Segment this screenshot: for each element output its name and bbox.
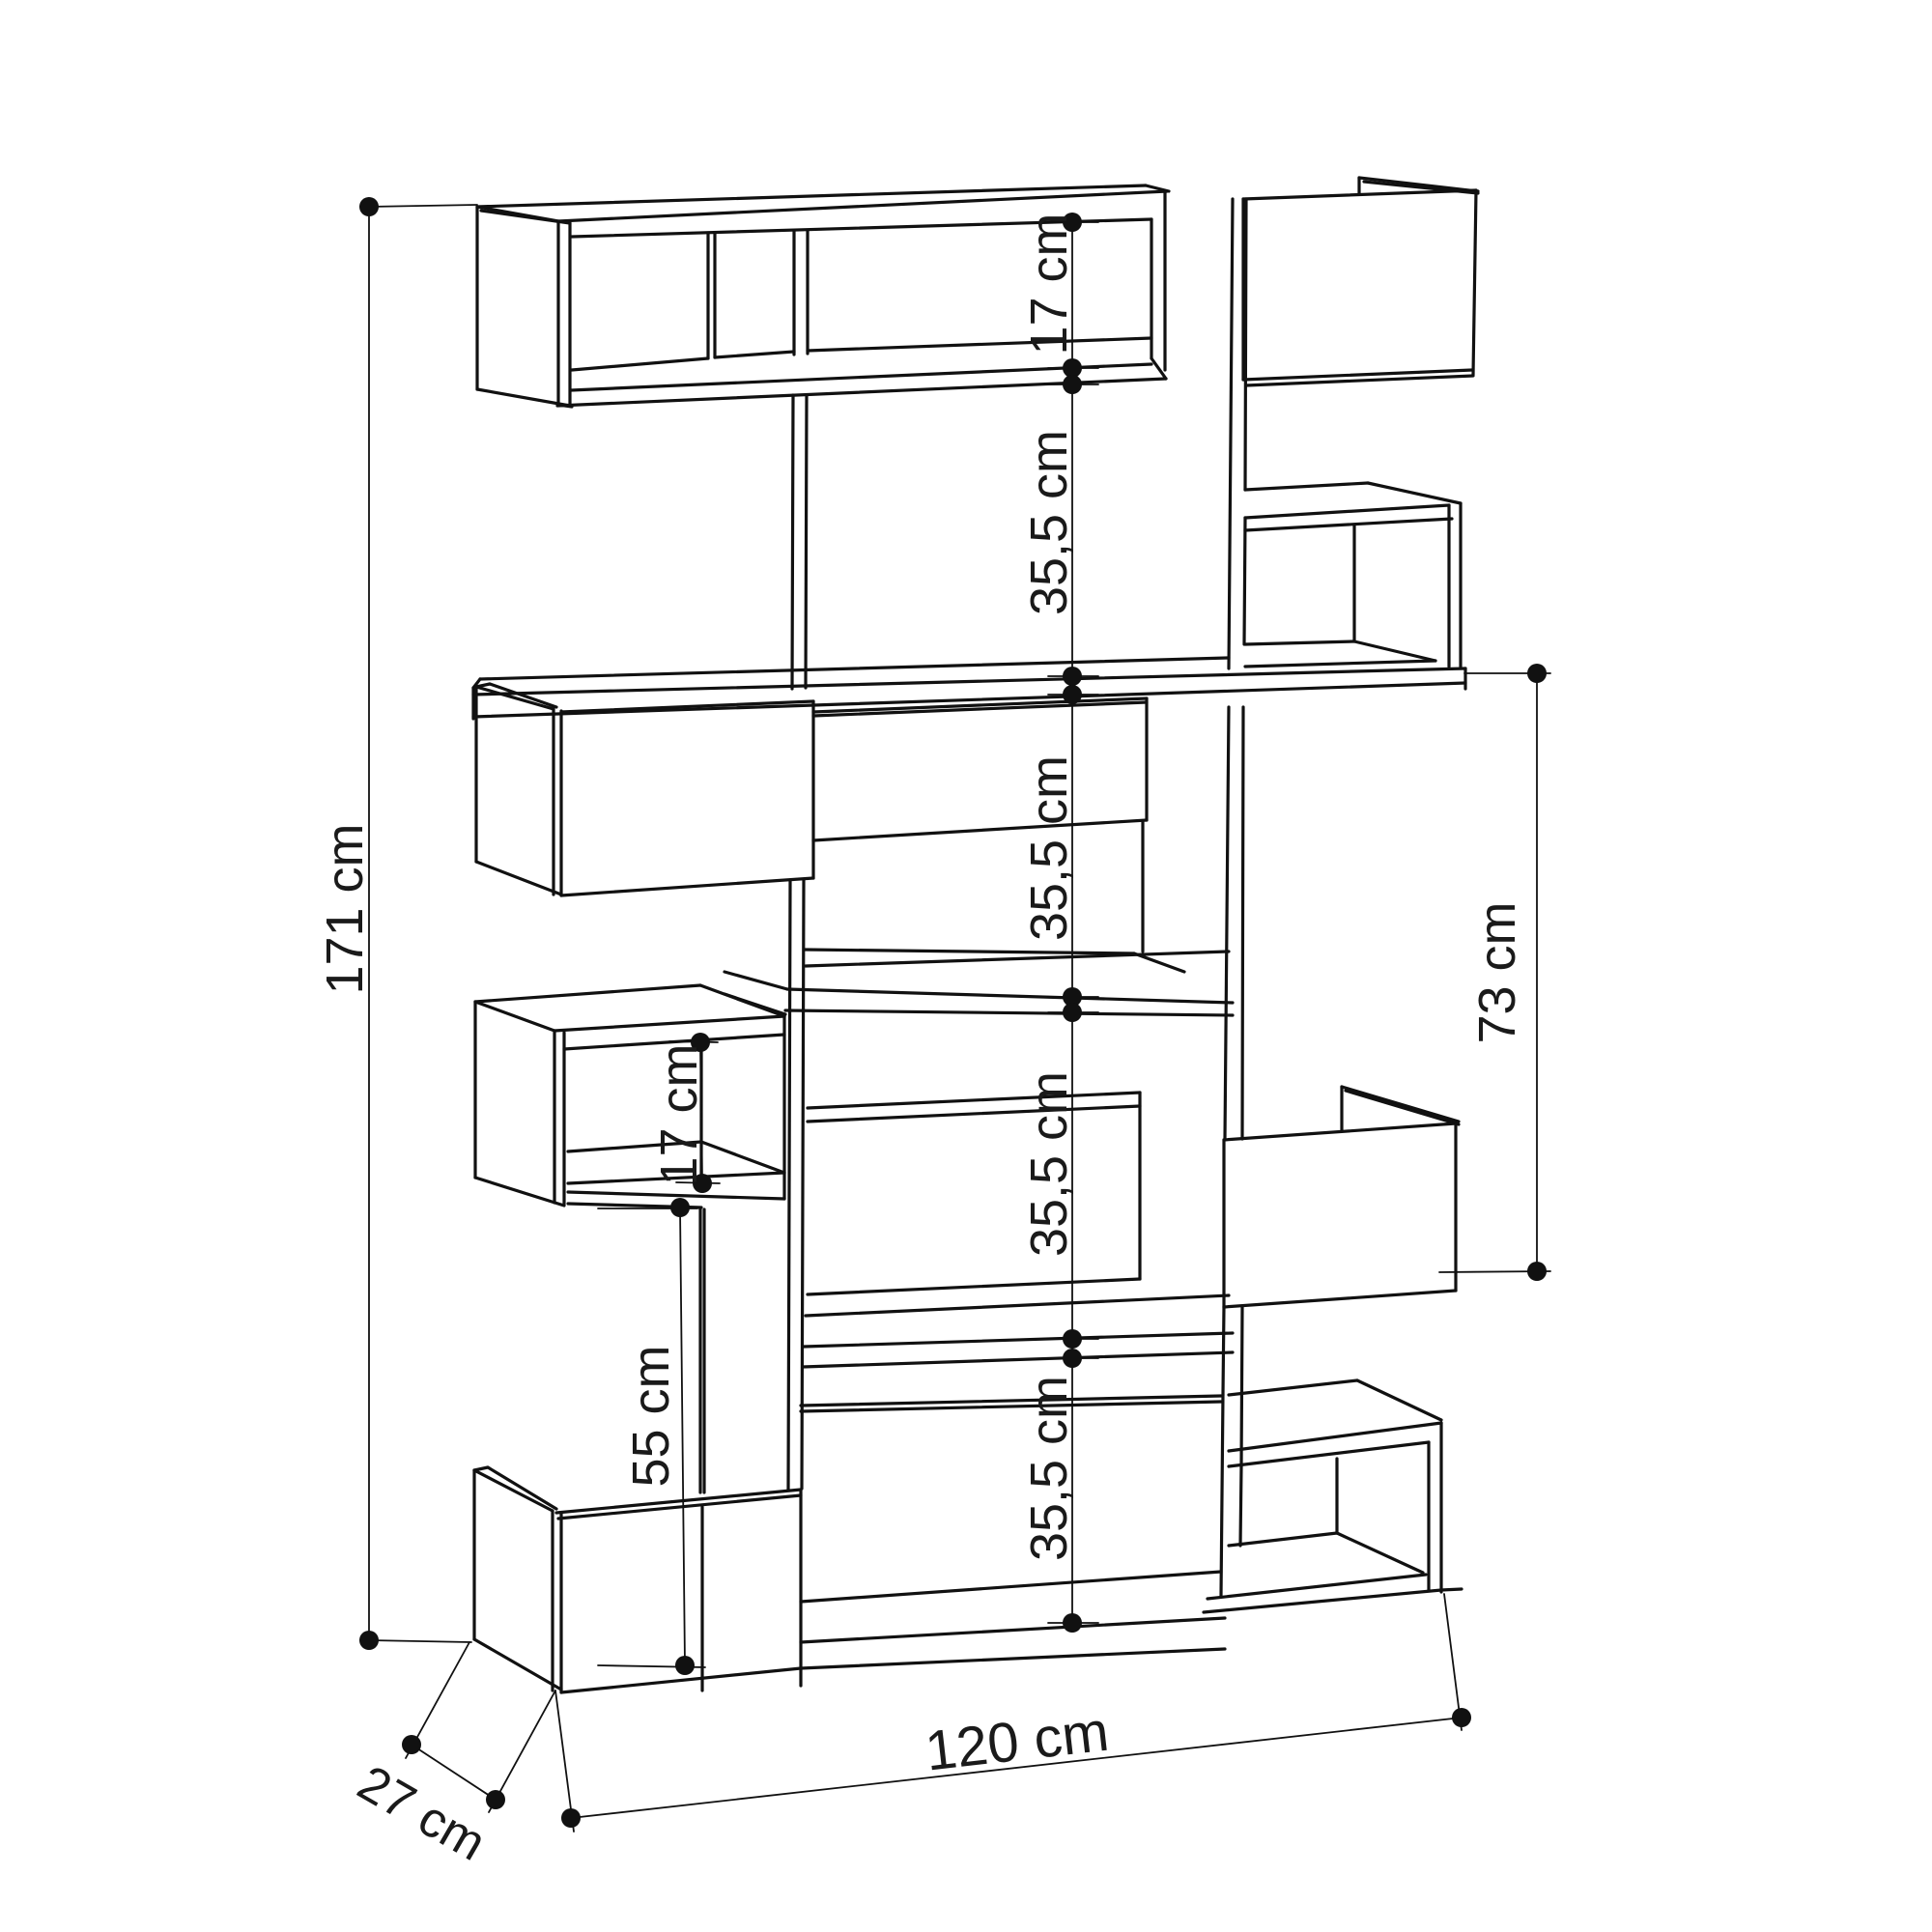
svg-text:17 cm: 17 cm xyxy=(1020,213,1078,355)
svg-text:35,5 cm: 35,5 cm xyxy=(1020,1071,1078,1257)
svg-text:55 cm: 55 cm xyxy=(622,1345,680,1487)
svg-text:35,5 cm: 35,5 cm xyxy=(1020,430,1078,615)
svg-text:171 cm: 171 cm xyxy=(316,823,374,994)
svg-text:35,5 cm: 35,5 cm xyxy=(1020,755,1078,941)
svg-text:17 cm: 17 cm xyxy=(650,1043,708,1185)
svg-text:73 cm: 73 cm xyxy=(1468,901,1526,1043)
svg-text:35,5 cm: 35,5 cm xyxy=(1020,1376,1078,1561)
